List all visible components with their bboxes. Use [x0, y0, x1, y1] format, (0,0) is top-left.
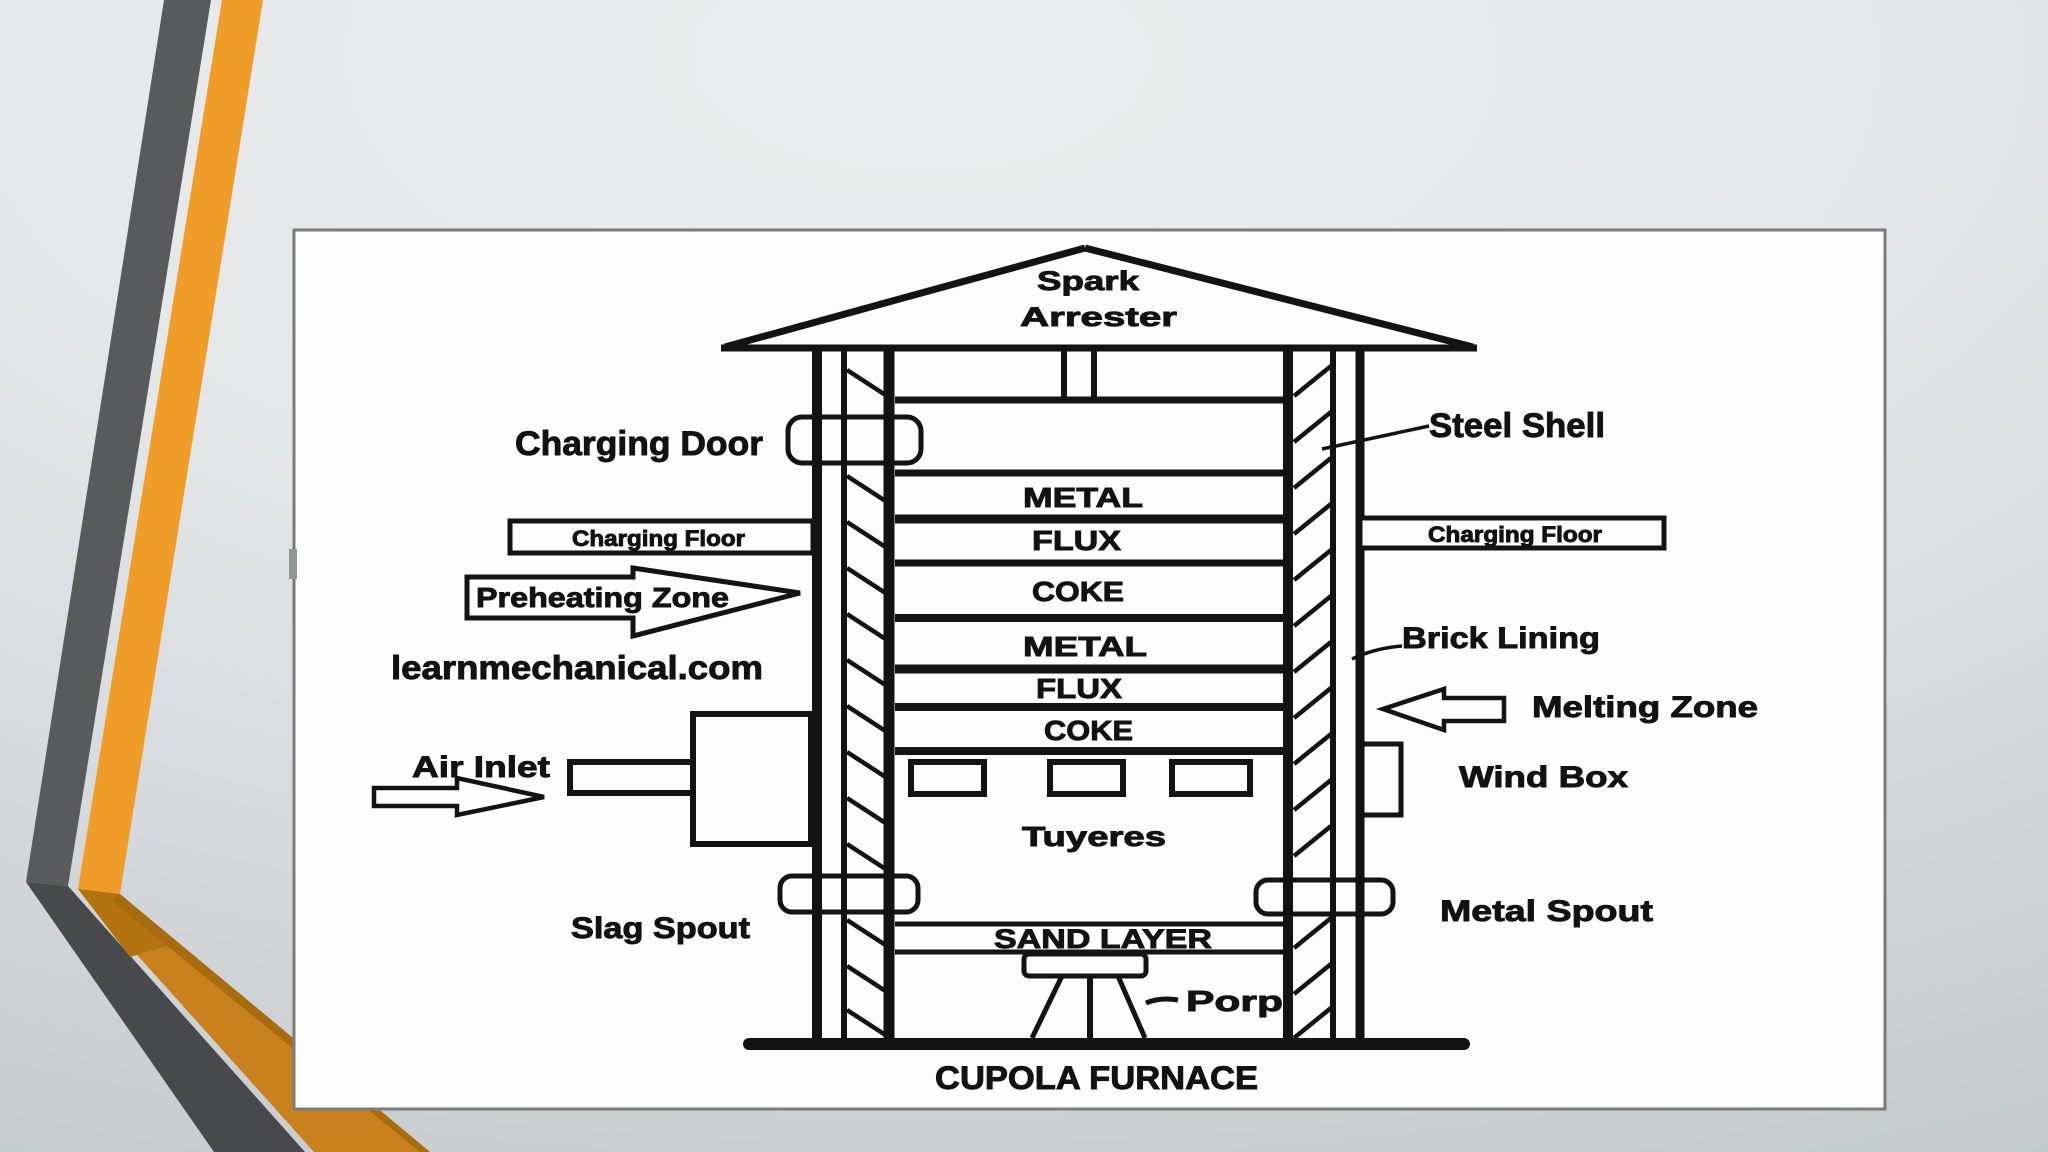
svg-text:Melting Zone: Melting Zone — [1532, 691, 1758, 724]
svg-text:Charging Floor: Charging Floor — [1428, 522, 1602, 547]
svg-text:Brick Lining: Brick Lining — [1402, 622, 1600, 655]
svg-text:Spark: Spark — [1037, 266, 1140, 296]
svg-text:METAL: METAL — [1023, 631, 1147, 662]
svg-text:FLUX: FLUX — [1032, 525, 1121, 556]
svg-text:CUPOLA FURNACE: CUPOLA FURNACE — [935, 1060, 1258, 1096]
svg-text:Charging Floor: Charging Floor — [572, 526, 745, 551]
svg-text:Steel Shell: Steel Shell — [1429, 407, 1605, 445]
svg-text:learnmechanical.com: learnmechanical.com — [391, 649, 763, 686]
svg-text:Air Inlet: Air Inlet — [412, 751, 550, 784]
svg-text:Preheating Zone: Preheating Zone — [476, 582, 729, 613]
svg-text:METAL: METAL — [1023, 482, 1143, 513]
svg-text:Arrester: Arrester — [1020, 302, 1178, 332]
svg-text:Charging Door: Charging Door — [515, 425, 763, 463]
svg-text:COKE: COKE — [1032, 576, 1124, 607]
svg-text:Slag Spout: Slag Spout — [571, 912, 750, 945]
svg-text:COKE: COKE — [1044, 715, 1133, 746]
svg-text:Wind Box: Wind Box — [1459, 761, 1628, 794]
svg-text:Metal Spout: Metal Spout — [1440, 895, 1653, 928]
svg-text:Tuyeres: Tuyeres — [1022, 821, 1166, 852]
svg-text:Porp: Porp — [1186, 986, 1283, 1018]
svg-text:FLUX: FLUX — [1036, 673, 1122, 704]
